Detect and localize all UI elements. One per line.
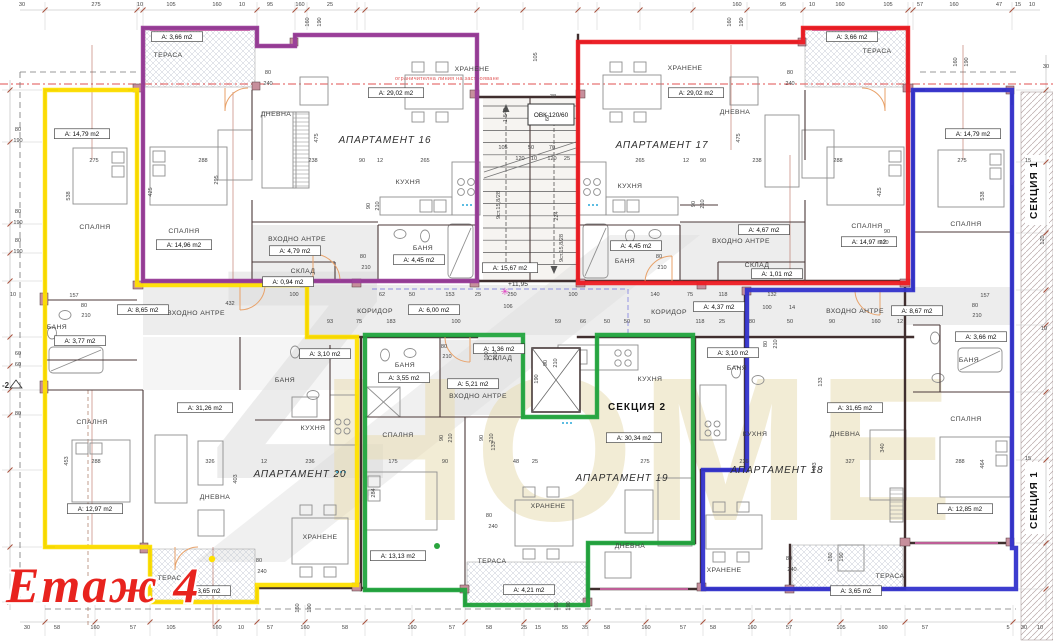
dimension-label: 57 [922, 625, 928, 631]
area-box-text: А: 8,65 m2 [128, 307, 159, 314]
dimension-label: 50 [604, 319, 610, 325]
dimension-label: 100 [484, 351, 490, 360]
dimension-label: 160 [407, 625, 416, 631]
room-label: БАНЯ [47, 324, 67, 331]
room-label: КОРИДОР [651, 309, 687, 316]
dimension-label: 30 [1043, 64, 1049, 70]
dimension-label: 90 [442, 459, 448, 465]
area-box: А: 31,26 m2 [177, 403, 232, 413]
dimension-label: 284 [371, 488, 377, 497]
dimension-label: 160 [953, 57, 959, 66]
room-label: СПАЛНЯ [851, 223, 882, 230]
area-box: А: 3,10 m2 [708, 348, 759, 358]
dimension-label: 157 [69, 293, 78, 299]
area-box: А: 4,37 m2 [694, 302, 745, 312]
dimension-label: 210 [375, 201, 381, 210]
room-label: СКЛАД [291, 268, 316, 275]
area-box: А: 5,21 m2 [448, 379, 499, 389]
dimension-label: 80 [15, 411, 21, 417]
room-label: ВХОДНО АНТРЕ [167, 310, 225, 317]
area-box-text: А: 1,01 m2 [762, 271, 793, 278]
area-box: А: 3,66 m2 [827, 32, 878, 42]
dimension-label: 160 [828, 552, 834, 561]
dimension-label: 160 [212, 2, 221, 8]
dimension-label: 432 [225, 301, 234, 307]
dimension-label: 120 [547, 156, 556, 162]
area-box-text: А: 14,96 m2 [167, 242, 202, 249]
dimension-label: 90 [366, 203, 372, 209]
level-mark: +11,95 [508, 281, 528, 288]
area-box: А: 12,97 m2 [67, 504, 122, 514]
room-label: ДНЕВНА [720, 109, 750, 116]
dimension-label: 133 [818, 377, 824, 386]
dimension-label: 80 [486, 513, 492, 519]
dimension-label: 100 [762, 305, 771, 311]
dimension-label: 50 [528, 145, 534, 151]
dimension-label: 250 [507, 292, 516, 298]
dimension-label: 48 [513, 459, 519, 465]
dimension-label: 80 [763, 341, 769, 347]
area-box: А: 30,34 m2 [606, 433, 661, 443]
dimension-label: 95 [780, 2, 786, 8]
area-box-text: А: 29,02 m2 [379, 90, 414, 97]
dimension-label: 38 [550, 94, 556, 100]
dimension-label: 12 [897, 319, 903, 325]
dimension-label: 66 [580, 319, 586, 325]
room-label: КУХНЯ [301, 425, 326, 432]
dimension-label: 58 [342, 625, 348, 631]
dimension-label: 90 [691, 201, 697, 207]
area-box: А: 15,67 m2 [482, 263, 537, 273]
regulation-note: ограничителна линия на застрояване [395, 76, 499, 82]
area-box: А: 4,45 m2 [611, 241, 662, 251]
dimension-label: 475 [314, 133, 320, 142]
area-box-text: А: 15,67 m2 [493, 265, 528, 272]
area-box: А: 14,79 m2 [54, 129, 109, 139]
dimension-label: 160 [554, 601, 560, 610]
dimension-label: 160 [871, 319, 880, 325]
area-box: А: 31,65 m2 [827, 403, 882, 413]
dimension-label: 475 [736, 133, 742, 142]
dimension-label: 90 [829, 319, 835, 325]
area-box: А: 3,55 m2 [379, 373, 430, 383]
dimension-label: 210 [657, 265, 666, 271]
area-box-text: А: 14,79 m2 [956, 131, 991, 138]
dimension-label: 60 [15, 362, 21, 368]
dimension-label: 105 [166, 2, 175, 8]
room-label: ТЕРАСА [863, 48, 892, 55]
dimension-label: 9ст.15,8/28 [559, 234, 565, 262]
room-label: СПАЛНЯ [79, 224, 110, 231]
dimension-label: 90 [700, 158, 706, 164]
dimension-label: 288 [198, 158, 207, 164]
room-label: БАНЯ [959, 357, 979, 364]
room-label: КУХНЯ [396, 179, 421, 186]
dimension-label: 453 [64, 456, 70, 465]
dimension-label: 75 [356, 319, 362, 325]
room-label: ДНЕВНА [830, 431, 860, 438]
area-box: А: 14,79 m2 [945, 129, 1000, 139]
apartment-label: АПАРТАМЕНТ 17 [615, 140, 709, 151]
room-label: ХРАНЕНЕ [455, 66, 490, 73]
dimension-label: 403 [233, 474, 239, 483]
floor-title: Етаж 4 [6, 560, 200, 610]
dimension-label: 288 [955, 459, 964, 465]
room-label: КУХНЯ [618, 183, 643, 190]
dimension-label: 10 [1037, 625, 1043, 631]
dimension-label: 160 [300, 625, 309, 631]
dimension-label: 57 [130, 625, 136, 631]
dimension-label: 160 [295, 603, 301, 612]
dimension-label: 288 [833, 158, 842, 164]
area-box: А: 4,45 m2 [394, 255, 445, 265]
area-box-text: А: 3,77 m2 [65, 338, 96, 345]
dimension-label: 14 [789, 305, 795, 311]
dimension-label: 403 [812, 462, 818, 471]
area-box: А: 1,36 m2 [474, 344, 525, 354]
dimension-label: 80 [656, 254, 662, 260]
dimension-label: 133 [491, 441, 497, 450]
dimension-label: 12 [377, 158, 383, 164]
floor-plan-page: Z НОМЕ ограничителна линия на застрояван… [0, 0, 1053, 641]
dimension-label: 327 [845, 459, 854, 465]
area-box-text: А: 4,45 m2 [621, 243, 652, 250]
room-label: ВХОДНО АНТРЕ [268, 236, 326, 243]
dimension-label: 57 [680, 625, 686, 631]
dimension-label: 57 [449, 625, 455, 631]
area-box: А: 3,66 m2 [152, 32, 203, 42]
dimension-label: 190 [13, 249, 22, 255]
dimension-label: 100 [289, 292, 298, 298]
area-box-text: А: 3,10 m2 [718, 350, 749, 357]
dimension-label: 25 [564, 156, 570, 162]
room-label: СПАЛНЯ [168, 228, 199, 235]
dimension-label: 265 [635, 158, 644, 164]
dimension-label: 425 [148, 187, 154, 196]
room-label: ХРАНЕНЕ [303, 534, 338, 541]
room-label: ДНЕВНА [200, 494, 230, 501]
dimension-label: 80 [972, 303, 978, 309]
area-box: А: 4,79 m2 [270, 246, 321, 256]
area-box: А: 4,67 m2 [739, 225, 790, 235]
dimension-label: 288 [91, 459, 100, 465]
dimension-label: 50 [409, 292, 415, 298]
dimension-label: 105 [533, 52, 539, 61]
dimension-label: 538 [980, 191, 986, 200]
dimension-label: 190 [317, 17, 323, 26]
area-box: А: 29,02 m2 [368, 88, 423, 98]
dimension-label: 190 [964, 57, 970, 66]
dimension-label: 15 [1025, 158, 1031, 164]
area-box: А: 3,77 m2 [55, 336, 106, 346]
dimension-label: 240 [263, 81, 272, 87]
dimension-label: 57 [267, 625, 273, 631]
area-box-text: А: 4,37 m2 [704, 304, 735, 311]
dimension-label: 10 [239, 2, 245, 8]
area-box: А: 3,66 m2 [956, 332, 1007, 342]
area-box-text: А: 4,67 m2 [749, 227, 780, 234]
area-box-text: А: 29,02 m2 [679, 90, 714, 97]
area-box-text: А: 6,00 m2 [419, 307, 450, 314]
dimension-label: 25 [521, 625, 527, 631]
masonry-pier [900, 538, 910, 546]
masonry-pier [252, 82, 260, 90]
area-box-text: А: 13,13 m2 [381, 553, 416, 560]
hvac-box: ОВК 120/60 [528, 104, 574, 125]
dimension-label: 12 [683, 158, 689, 164]
area-box: А: 0,94 m2 [263, 277, 314, 287]
dimension-label: 105 [836, 625, 845, 631]
room-label: КУХНЯ [743, 431, 768, 438]
section-1-label-top: СЕКЦИЯ 1 [1029, 161, 1040, 219]
area-box: А: 3,10 m2 [300, 349, 351, 359]
dimension-label: 238 [308, 158, 317, 164]
dimension-label: 10 [809, 2, 815, 8]
room-label: ХРАНЕНЕ [668, 65, 703, 72]
area-box-text: А: 3,55 m2 [389, 375, 420, 382]
dimension-label: 265 [420, 158, 429, 164]
room-label: БАНЯ [615, 258, 635, 265]
area-box: А: 1,01 m2 [752, 269, 803, 279]
dimension-label: 160 [641, 625, 650, 631]
dimension-label: 25 [532, 459, 538, 465]
dimension-label: 190 [839, 552, 845, 561]
dimension-label: 58 [54, 625, 60, 631]
area-box-text: А: 31,65 m2 [838, 405, 873, 412]
dimension-label: 105 [498, 145, 507, 151]
dimension-label: 50 [624, 319, 630, 325]
dimension-label: 10 [10, 292, 16, 298]
dimension-label: 210 [493, 351, 499, 360]
dimension-label: 90 [543, 360, 549, 366]
room-label: БАНЯ [275, 377, 295, 384]
area-box-text: А: 0,94 m2 [273, 279, 304, 286]
area-box-text: А: 12,97 m2 [78, 506, 113, 513]
room-label: ХРАНЕНЕ [707, 567, 742, 574]
dimension-label: 80 [787, 70, 793, 76]
dimension-label: 15 [1025, 456, 1031, 462]
dimension-label: 80 [256, 558, 262, 564]
dimension-label: 10 [1041, 326, 1047, 332]
dimension-label: 236 [305, 459, 314, 465]
area-box: А: 3,65 m2 [831, 586, 882, 596]
dimension-label: 340 [880, 443, 886, 452]
dimension-label: 100 [451, 319, 460, 325]
area-box-text: А: 14,79 m2 [65, 131, 100, 138]
area-box: А: 14,96 m2 [156, 240, 211, 250]
dimension-label: 50 [644, 319, 650, 325]
dimension-label: 30 [19, 2, 25, 8]
apartment-label: АПАРТАМЕНТ 19 [575, 473, 669, 484]
dimension-label: 210 [879, 240, 888, 246]
dimension-label: 210 [700, 199, 706, 208]
dimension-label: 58 [604, 625, 610, 631]
room-label: ДНЕВНА [615, 543, 645, 550]
dimension-label: 9ст.15,8/28 [496, 191, 502, 219]
dimension-label: 210 [972, 313, 981, 319]
area-box-text: А: 3,66 m2 [966, 334, 997, 341]
dimension-label: 120 [515, 156, 524, 162]
dimension-label: 275 [91, 2, 100, 8]
area-box: А: 6,00 m2 [409, 305, 460, 315]
dimension-label: 538 [66, 191, 72, 200]
dimension-label: 30 [1021, 625, 1027, 631]
dimension-label: 25 [327, 2, 333, 8]
dimension-label: 58 [486, 625, 492, 631]
dimension-label: 118 [696, 319, 705, 325]
area-box-text: А: 31,26 m2 [188, 405, 223, 412]
dimension-label: 160 [305, 17, 311, 26]
dimension-label: 1-540 [503, 108, 509, 122]
dimension-label: 105 [883, 2, 892, 8]
room-label: КУХНЯ [638, 376, 663, 383]
dimension-label: 90 [439, 435, 445, 441]
dimension-label: 425 [877, 187, 883, 196]
room-label: ВХОДНО АНТРЕ [826, 308, 884, 315]
plant-dot [434, 543, 440, 549]
area-box-text: А: 5,21 m2 [458, 381, 489, 388]
area-box-text: А: 3,10 m2 [310, 351, 341, 358]
room-label: ТЕРАСА [876, 573, 905, 580]
area-box-text: А: 4,21 m2 [514, 587, 545, 594]
dimension-label: 10 [1029, 2, 1035, 8]
room-label: БАНЯ [413, 245, 433, 252]
dimension-label: 80 [786, 556, 792, 562]
room-label: ТЕРАСА [154, 52, 183, 59]
area-box: А: 12,85 m2 [937, 504, 992, 514]
dimension-label: 10 [137, 2, 143, 8]
dimension-label: 160 [212, 625, 221, 631]
dimension-label: 70 [549, 145, 555, 151]
area-box-text: А: 8,67 m2 [902, 308, 933, 315]
apartment-label: АПАРТАМЕНТ 20 [253, 469, 347, 480]
area-box: А: 29,02 m2 [668, 88, 723, 98]
dimension-label: 93 [327, 319, 333, 325]
dimension-label: 157 [980, 293, 989, 299]
dimension-label: 295 [214, 175, 220, 184]
dimension-label: 326 [205, 459, 214, 465]
dimension-label: 183 [386, 319, 395, 325]
dimension-label: 464 [980, 459, 986, 468]
area-box-text: А: 4,79 m2 [280, 248, 311, 255]
dimension-label: 60 [545, 115, 551, 121]
dimension-label: 132 [767, 292, 776, 298]
dimension-label: 210 [448, 433, 454, 442]
area-box-text: А: 3,66 m2 [162, 34, 193, 41]
dimension-label: 57 [917, 2, 923, 8]
dimension-label: 120 [1040, 235, 1046, 244]
room-label: СКЛАД [488, 355, 513, 362]
dimension-label: 100 [568, 292, 577, 298]
dimension-label: 10 [238, 625, 244, 631]
dimension-label: 160 [747, 625, 756, 631]
floor-plan-drawing: Z НОМЕ ограничителна линия на застрояван… [0, 0, 1053, 641]
room-label: СПАЛНЯ [950, 221, 981, 228]
room-label: ДНЕВНА [261, 111, 291, 118]
dimension-label: 160 [732, 2, 741, 8]
room-label: ХРАНЕНЕ [531, 503, 566, 510]
dimension-label: 106 [503, 304, 512, 310]
dimension-label: 224 [554, 211, 560, 220]
room-label: БАНЯ [727, 365, 747, 372]
area-box-text: А: 3,66 m2 [837, 34, 868, 41]
dimension-label: 25 [719, 319, 725, 325]
dimension-label: 80 [15, 127, 21, 133]
dimension-label: 15 [1015, 2, 1021, 8]
dimension-label: 47 [996, 2, 1002, 8]
dimension-label: 118 [719, 292, 728, 298]
dimension-label: 236 [739, 459, 748, 465]
dimension-label: 80 [15, 209, 21, 215]
area-box: А: 8,65 m2 [118, 305, 169, 315]
dimension-label: 60 [15, 351, 21, 357]
room-label: ВХОДНО АНТРЕ [712, 238, 770, 245]
dimension-label: 80 [265, 70, 271, 76]
dimension-label: 240 [488, 524, 497, 530]
dimension-label: 210 [442, 354, 451, 360]
dimension-label: 190 [566, 601, 572, 610]
dimension-label: 10 [531, 156, 537, 162]
dimension-label: 190 [534, 374, 540, 383]
area-box-text: А: 12,85 m2 [948, 506, 983, 513]
dimension-label: 190 [13, 220, 22, 226]
room-label: БАНЯ [395, 362, 415, 369]
dimension-label: 240 [787, 567, 796, 573]
dimension-label: 160 [949, 2, 958, 8]
dimension-label: 50 [787, 319, 793, 325]
dimension-label: 55 [562, 625, 568, 631]
dimension-label: 80 [15, 238, 21, 244]
dimension-label: 190 [307, 603, 313, 612]
dimension-label: 25 [475, 292, 481, 298]
dimension-label: 80 [749, 319, 755, 325]
area-box-text: А: 3,65 m2 [841, 588, 872, 595]
dimension-label: 210 [773, 339, 779, 348]
dimension-label: 15 [535, 625, 541, 631]
room-label: ТЕРАСА [478, 558, 507, 565]
dimension-label: 90 [884, 229, 890, 235]
dimension-label: 80 [441, 344, 447, 350]
lamp-dot [209, 556, 215, 562]
dimension-label: 95 [267, 2, 273, 8]
room-label: СПАЛНЯ [382, 432, 413, 439]
area-box: А: 13,13 m2 [370, 551, 425, 561]
room-label: СПАЛНЯ [950, 416, 981, 423]
dimension-label: 57 [786, 625, 792, 631]
dimension-label: 210 [361, 265, 370, 271]
area-box: А: 8,67 m2 [892, 306, 943, 316]
apartment-label: АПАРТАМЕНТ 16 [338, 135, 432, 146]
dimension-label: 160 [727, 17, 733, 26]
dimension-label: 5 [1006, 625, 1009, 631]
section-2-label: СЕКЦИЯ 2 [608, 402, 666, 413]
dimension-label: 35 [582, 625, 588, 631]
dimension-label: 62 [379, 292, 385, 298]
dimension-label: 210 [489, 433, 495, 442]
dimension-label: 275 [957, 158, 966, 164]
room-label: КОРИДОР [357, 308, 393, 315]
dimension-label: 238 [752, 158, 761, 164]
room-label: СПАЛНЯ [76, 419, 107, 426]
room-label: ВХОДНО АНТРЕ [449, 393, 507, 400]
dimension-label: 12 [261, 459, 267, 465]
dimension-label: 80 [81, 303, 87, 309]
apartment-label: АПАРТАМЕНТ 18 [730, 465, 824, 476]
dimension-label: 59 [555, 319, 561, 325]
room-label: СКЛАД [745, 262, 770, 269]
dimension-label: 160 [295, 2, 304, 8]
axis-label: -2 [2, 381, 10, 390]
